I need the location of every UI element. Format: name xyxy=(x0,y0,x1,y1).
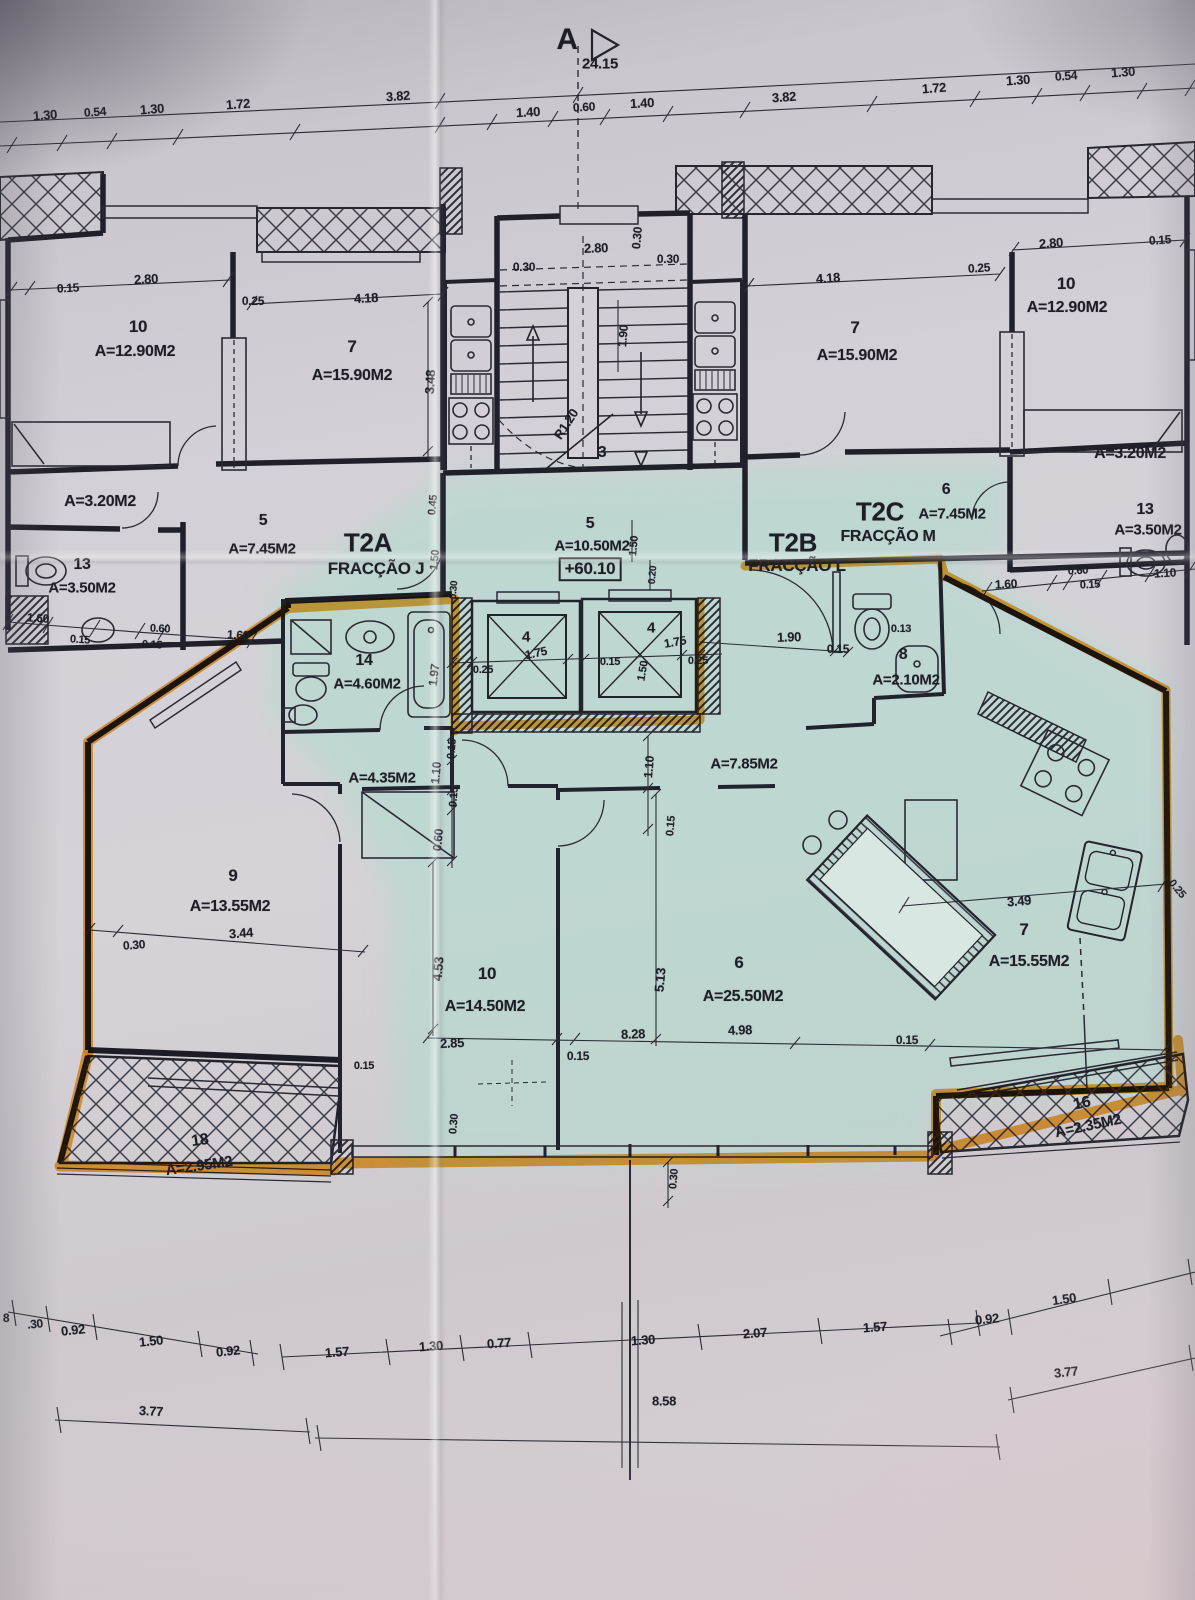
room-area: A=15.90M2 xyxy=(312,367,392,385)
room-area: A=3.20M2 xyxy=(64,493,136,511)
dim-label: 1.60 xyxy=(26,610,49,626)
dim-label: 1.90 xyxy=(615,324,631,347)
dim-label: 0.13 xyxy=(891,623,911,635)
room-area: A=7.45M2 xyxy=(918,506,985,523)
dim-label: 0.60 xyxy=(1068,564,1089,577)
unit-fraction-j: FRACÇÃO J xyxy=(328,559,424,579)
dim-label: 0.15 xyxy=(600,656,620,668)
room-area: A=25.50M2 xyxy=(703,988,783,1006)
dim-label: 1.50 xyxy=(428,549,442,570)
dim-label: 0.15 xyxy=(664,815,678,836)
dim-label: 2.80 xyxy=(584,240,609,256)
dim-label: 0.30 xyxy=(448,580,461,599)
dim-label: 4.98 xyxy=(728,1022,753,1038)
dim-label: 0.15 xyxy=(447,786,461,807)
dim-label: 1.30 xyxy=(1110,64,1135,81)
dim-label: 0.92 xyxy=(215,1342,241,1359)
room-area: A=2.10M2 xyxy=(872,672,939,689)
room-area: A=3.20M2 xyxy=(1094,445,1166,463)
dim-label: 1.30 xyxy=(32,107,57,124)
unit-fraction-m: FRACÇÃO M xyxy=(840,528,935,546)
room-number: 10 xyxy=(1057,274,1075,294)
room-area: A=15.90M2 xyxy=(817,347,897,365)
stair-radius: R1.20 xyxy=(551,406,582,442)
dim-label: 2.85 xyxy=(440,1035,465,1051)
room-number: 6 xyxy=(734,953,743,973)
dim-label: 0.15 xyxy=(827,642,849,656)
room-number: 16 xyxy=(1072,1093,1093,1114)
unit-code-t2b: T2B xyxy=(769,528,817,559)
dim-label: 0.54 xyxy=(83,104,106,120)
room-area: A=4.60M2 xyxy=(333,676,400,693)
dim-label: 4.53 xyxy=(429,956,446,981)
dim-label: 1.50 xyxy=(635,660,650,682)
dim-label: 0.30 xyxy=(629,226,645,249)
unit-code-t2a: T2A xyxy=(344,528,392,559)
dim-label: 1.50 xyxy=(1051,1290,1077,1308)
dim-label: 8 xyxy=(3,1311,9,1325)
dim-label: 0.30 xyxy=(122,937,145,953)
dim-label: 1.30 xyxy=(139,101,164,118)
dim-label: 1.40 xyxy=(516,104,541,120)
dim-label: 0.25 xyxy=(242,294,264,308)
dim-label: 3.77 xyxy=(1053,1363,1079,1380)
dim-label: 1.10 xyxy=(1154,565,1177,580)
dim-label: 24.15 xyxy=(582,56,618,73)
room-number: 18 xyxy=(190,1131,210,1151)
room-number: 7 xyxy=(850,318,859,338)
section-letter: A xyxy=(556,23,577,57)
dim-label: 0.54 xyxy=(1054,68,1077,84)
room-number: 7 xyxy=(347,337,356,357)
dim-label: 1.10 xyxy=(641,755,657,778)
dim-label: 0.15 xyxy=(142,638,163,651)
room-area: A=12.90M2 xyxy=(95,343,175,361)
dim-label: 1.57 xyxy=(324,1344,349,1361)
unit-fraction-l: FRACÇÃO L xyxy=(748,556,845,576)
dim-label: 1.50 xyxy=(627,535,641,556)
room-area: A=7.45M2 xyxy=(228,541,295,558)
dim-label: 3.44 xyxy=(228,925,253,942)
dim-label: 1.90 xyxy=(777,629,802,645)
room-number: 6 xyxy=(942,481,951,499)
elevator-number: 4 xyxy=(522,629,530,646)
dim-label: 2.07 xyxy=(742,1325,767,1342)
dim-label: 1.97 xyxy=(426,663,443,687)
dim-label: 0.15 xyxy=(354,1060,374,1072)
dim-label: 0.15 xyxy=(896,1033,918,1047)
dim-label: 0.30 xyxy=(667,1168,681,1189)
dim-label: .30 xyxy=(26,1316,43,1332)
dim-label: 2.80 xyxy=(134,271,159,287)
dim-label: 0.25 xyxy=(967,260,990,276)
stair-number: 3 xyxy=(598,444,607,462)
elevator-number: 4 xyxy=(647,620,655,637)
dim-label: 0.25 xyxy=(688,655,708,667)
room-number: 7 xyxy=(1019,920,1028,940)
dim-label: 5.13 xyxy=(651,967,668,992)
dim-label: 1.57 xyxy=(862,1319,887,1336)
dim-label: 0.15 xyxy=(1148,232,1171,248)
dim-label: 1.72 xyxy=(225,96,250,113)
room-area: A=3.50M2 xyxy=(48,580,115,597)
dim-label: 3.82 xyxy=(385,88,410,105)
room-number: 8 xyxy=(899,646,908,664)
dim-label: 0.45 xyxy=(426,494,440,515)
dim-label: 0.77 xyxy=(486,1335,511,1352)
room-area: A=4.35M2 xyxy=(348,770,415,787)
room-number: 5 xyxy=(586,515,595,533)
room-number: 14 xyxy=(355,652,372,670)
dim-label: 0.30 xyxy=(657,252,679,266)
dim-label: 0.15 xyxy=(445,738,459,759)
dim-label: 0.30 xyxy=(447,1113,461,1134)
room-area: A=2.35M2 xyxy=(1053,1111,1122,1142)
dim-label: 0.15 xyxy=(1080,578,1101,591)
room-area: A=13.55M2 xyxy=(190,898,270,916)
dim-label: 1.75 xyxy=(663,633,687,651)
dim-label: 3.77 xyxy=(139,1403,164,1419)
elevation-label: +60.10 xyxy=(559,557,622,581)
room-area: A=10.50M2 xyxy=(554,538,629,555)
dim-label: 1.60 xyxy=(227,627,250,642)
dim-label: 0.25 xyxy=(1166,877,1188,900)
dim-label: 0.60 xyxy=(430,828,446,851)
dim-label: 3.82 xyxy=(771,89,796,106)
floorplan-photo: A24.151.300.541.301.723.821.400.601.403.… xyxy=(0,0,1195,1600)
room-number: 13 xyxy=(1136,501,1153,519)
dim-label: 0.92 xyxy=(60,1321,86,1338)
room-number: 5 xyxy=(259,512,268,530)
room-number: 13 xyxy=(73,556,90,574)
dim-label: 1.50 xyxy=(138,1332,164,1349)
dim-label: 3.48 xyxy=(422,370,438,395)
dim-label: 0.15 xyxy=(69,633,90,646)
dim-label: 0.20 xyxy=(647,565,660,584)
dim-label: 0.92 xyxy=(974,1310,1000,1327)
dim-label: 4.18 xyxy=(815,270,840,287)
dim-label: 0.60 xyxy=(573,99,596,114)
room-area: A=12.90M2 xyxy=(1027,299,1107,317)
dim-label: 0.60 xyxy=(150,622,171,635)
dim-label: 2.80 xyxy=(1038,235,1063,252)
dim-label: 1.60 xyxy=(995,576,1018,591)
dim-label: 1.10 xyxy=(428,761,444,784)
room-area: A=2.95M2 xyxy=(165,1153,234,1179)
room-area: A=15.55M2 xyxy=(989,953,1069,971)
dim-label: 1.75 xyxy=(524,644,549,662)
dim-label: 4.18 xyxy=(354,290,379,306)
dim-label: 1.72 xyxy=(921,80,946,97)
room-area: A=14.50M2 xyxy=(445,998,525,1016)
dim-label: 0.25 xyxy=(473,664,493,676)
labels-layer: A24.151.300.541.301.723.821.400.601.403.… xyxy=(0,0,1195,1600)
dim-label: 1.40 xyxy=(630,95,655,111)
dim-label: 0.15 xyxy=(567,1049,589,1063)
room-area: A=7.85M2 xyxy=(710,756,777,773)
dim-label: 1.30 xyxy=(418,1338,443,1355)
unit-code-t2c: T2C xyxy=(856,497,904,528)
room-number: 10 xyxy=(478,964,496,984)
dim-label: 8.28 xyxy=(621,1026,646,1042)
dim-label: 0.15 xyxy=(57,280,80,295)
dim-label: 1.30 xyxy=(630,1332,655,1349)
dim-label: 8.58 xyxy=(652,1394,676,1409)
room-number: 9 xyxy=(228,866,237,886)
dim-label: 1.30 xyxy=(1005,72,1030,89)
dim-label: 3.49 xyxy=(1006,892,1031,909)
dim-label: 0.30 xyxy=(513,260,535,274)
room-number: 10 xyxy=(129,317,147,337)
room-area: A=3.50M2 xyxy=(1114,522,1181,539)
